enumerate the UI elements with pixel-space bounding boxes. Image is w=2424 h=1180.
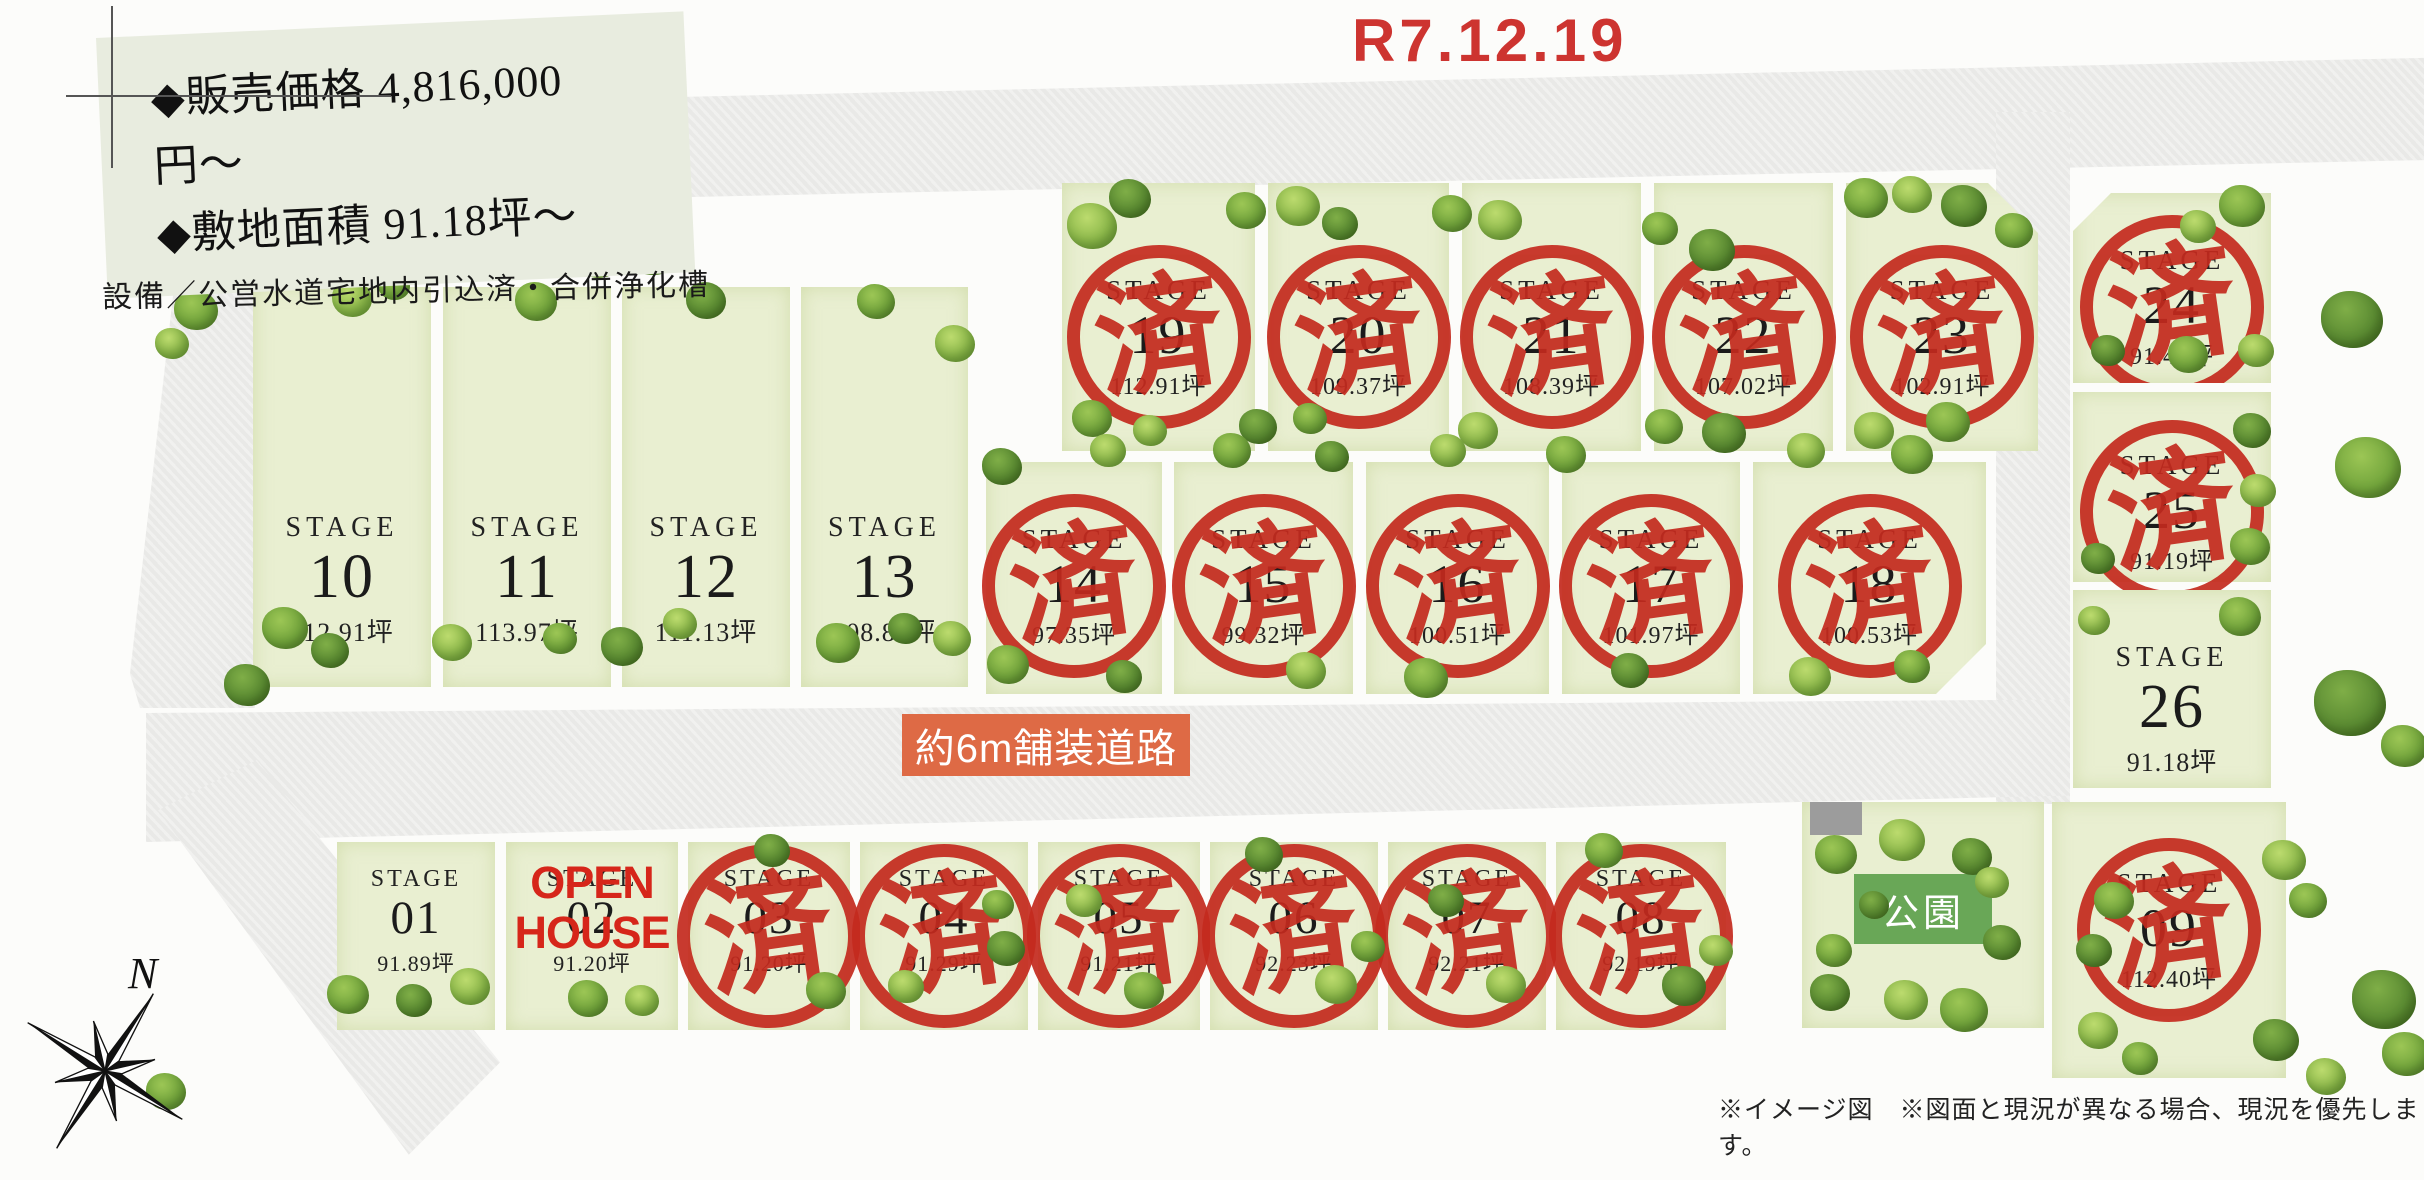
sold-stamp-char: 済	[2097, 858, 2242, 1003]
park-utility-square	[1810, 802, 1862, 835]
tree-icon	[982, 890, 1014, 919]
sold-stamp-icon: 済	[1363, 832, 1571, 1040]
tree-icon	[1642, 212, 1678, 245]
lot-label: STAGE 11 113.97坪	[443, 512, 611, 649]
sold-stamp-char: 済	[1797, 514, 1942, 659]
tree-icon	[1926, 402, 1970, 442]
tree-icon	[2219, 597, 2261, 636]
tree-icon	[888, 613, 922, 644]
sold-stamp-char: 済	[1870, 265, 2015, 410]
sold-stamp-char: 済	[1579, 514, 1724, 659]
tree-icon	[987, 931, 1025, 966]
tree-icon	[1322, 207, 1358, 240]
date-heading: R7.12.19	[1352, 6, 1628, 75]
tree-icon	[1891, 435, 1933, 474]
sold-stamp-icon: 済	[1448, 233, 1656, 441]
sold-stamp-char: 済	[2100, 440, 2245, 585]
tree-icon	[1315, 441, 1349, 472]
lot-area: 111.13坪	[622, 612, 790, 649]
tree-icon	[888, 970, 924, 1003]
lot-stage-15: STAGE 15 99.32坪 済	[1174, 462, 1353, 694]
tree-icon	[224, 664, 270, 706]
price-line: ◆販売価格 4,816,000円〜	[149, 43, 655, 202]
sold-stamp-icon: 済	[2068, 203, 2276, 411]
tree-icon	[2122, 1042, 2158, 1075]
tree-icon	[1404, 658, 1448, 698]
lot-number: 11	[443, 546, 611, 609]
lot-stage-22: STAGE 22 107.02坪 済	[1654, 183, 1833, 451]
tree-icon	[155, 328, 189, 359]
tree-icon	[450, 968, 490, 1005]
lot-stage-11: STAGE 11 113.97坪	[443, 287, 611, 687]
tree-icon	[1478, 200, 1522, 240]
tree-icon	[1702, 413, 1746, 453]
tree-icon	[1859, 891, 1889, 919]
lot-stage-18: STAGE 18 100.53坪 済	[1753, 462, 1986, 694]
lot-stage-07: STAGE 07 92.21坪 済	[1388, 842, 1546, 1030]
sold-stamp-icon: 済	[1766, 482, 1974, 690]
tree-icon	[987, 645, 1029, 684]
tree-icon	[2314, 670, 2386, 736]
tree-icon	[1884, 980, 1928, 1020]
sold-stamp-icon: 済	[1160, 482, 1368, 690]
tree-icon	[625, 985, 659, 1016]
open-house-label: OPENHOUSE	[514, 858, 669, 959]
disclaimer-note: ※イメージ図 ※図面と現況が異なる場合、現況を優先します。	[1718, 1090, 2424, 1162]
lot-label: STAGE 26 91.18坪	[2073, 642, 2271, 779]
lot-label: STAGE 01 91.89坪	[337, 866, 495, 978]
tree-icon	[1106, 660, 1142, 693]
tree-icon	[2382, 1032, 2424, 1076]
tree-icon	[2180, 210, 2216, 243]
lot-area: 91.18坪	[2073, 742, 2271, 779]
lot-label: STAGE 12 111.13坪	[622, 512, 790, 649]
tree-icon	[1293, 403, 1327, 434]
tree-icon	[1699, 935, 1733, 966]
site-plan-flyer: ◆販売価格 4,816,000円〜 ◆敷地面積 91.18坪〜 設備／公営水道宅…	[0, 0, 2424, 1174]
sold-stamp-icon: 済	[2065, 826, 2273, 1034]
tree-icon	[2321, 291, 2383, 348]
tree-icon	[1226, 192, 1266, 229]
tree-icon	[1815, 835, 1857, 874]
tree-icon	[1879, 819, 1925, 861]
tree-icon	[1789, 657, 1831, 696]
tree-icon	[982, 448, 1022, 485]
tree-icon	[1645, 409, 1683, 444]
sold-stamp-icon: 済	[1015, 832, 1223, 1040]
sold-stamp-char: 済	[1002, 514, 1147, 659]
crop-mark-horizontal	[66, 95, 391, 97]
tree-icon	[1432, 195, 1472, 232]
lot-number: 13	[801, 546, 968, 609]
tree-icon	[2335, 437, 2401, 498]
lot-number: 26	[2073, 676, 2271, 739]
sold-stamp-char: 済	[1385, 514, 1530, 659]
tree-icon	[2240, 474, 2276, 507]
sold-stamp-char: 済	[1671, 265, 1816, 410]
tree-icon	[1983, 925, 2021, 960]
lot-stage-word: STAGE	[253, 512, 431, 544]
tree-icon	[2230, 528, 2270, 565]
tree-icon	[1486, 966, 1526, 1003]
tree-icon	[2289, 883, 2327, 918]
sold-stamp-icon: 済	[1255, 233, 1463, 441]
sold-stamp-char: 済	[1191, 514, 1336, 659]
tree-icon	[2078, 1012, 2118, 1049]
tree-icon	[1662, 966, 1706, 1006]
lot-number: 12	[622, 546, 790, 609]
tree-icon	[1854, 412, 1894, 449]
tree-icon	[543, 623, 577, 654]
tree-icon	[806, 972, 846, 1009]
tree-icon	[935, 325, 975, 362]
lot-stage-05: STAGE 05 91.21坪 済	[1038, 842, 1200, 1030]
tree-icon	[816, 623, 860, 663]
tree-icon	[1066, 884, 1102, 917]
tree-icon	[1611, 653, 1649, 688]
tree-icon	[1124, 972, 1164, 1009]
tree-icon	[2078, 606, 2110, 635]
tree-icon	[1351, 931, 1385, 962]
tree-icon	[1940, 988, 1988, 1032]
lot-number: 01	[337, 895, 495, 943]
tree-icon	[1133, 415, 1167, 446]
tree-icon	[2253, 1019, 2299, 1061]
tree-icon	[568, 980, 608, 1017]
tree-icon	[1315, 965, 1357, 1004]
tree-icon	[2219, 185, 2265, 227]
tree-icon	[2168, 336, 2208, 373]
tree-icon	[262, 607, 308, 649]
tree-icon	[311, 633, 349, 668]
lot-stage-word: STAGE	[801, 512, 968, 544]
tree-icon	[2094, 882, 2134, 919]
tree-icon	[1816, 934, 1852, 967]
sold-stamp-icon: 済	[1547, 482, 1755, 690]
tree-icon	[396, 984, 432, 1017]
tree-icon	[1941, 185, 1987, 227]
tree-icon	[754, 834, 790, 867]
compass-north-label: N	[128, 948, 157, 999]
tree-icon	[2262, 840, 2306, 880]
crop-mark-vertical	[111, 6, 113, 168]
tree-icon	[857, 284, 895, 319]
tree-icon	[1067, 203, 1117, 249]
tree-icon	[1213, 433, 1251, 468]
tree-icon	[1428, 884, 1464, 917]
road-width-label: 約6m舗装道路	[902, 714, 1190, 776]
tree-icon	[1245, 837, 1283, 872]
sold-stamp-icon: 済	[1354, 482, 1562, 690]
tree-icon	[1689, 229, 1735, 271]
tree-icon	[2233, 413, 2271, 448]
road-top	[610, 55, 2424, 197]
sold-stamp-char: 済	[1047, 864, 1192, 1009]
compass-rose: N	[10, 930, 240, 1170]
tree-icon	[663, 608, 697, 639]
price-info-box: ◆販売価格 4,816,000円〜 ◆敷地面積 91.18坪〜	[96, 11, 695, 298]
tree-icon	[1585, 833, 1623, 868]
sold-stamp-char: 済	[1286, 265, 1431, 410]
tree-icon	[1787, 433, 1825, 468]
tree-icon	[1810, 974, 1850, 1011]
tree-icon	[1975, 867, 2009, 898]
tree-icon	[432, 624, 472, 661]
tree-icon	[1995, 213, 2033, 248]
tree-icon	[1109, 179, 1151, 218]
tree-icon	[2352, 970, 2416, 1029]
tree-icon	[1090, 434, 1126, 467]
tree-icon	[1286, 652, 1326, 689]
tree-icon	[601, 627, 643, 666]
tree-icon	[1276, 186, 1320, 226]
tree-icon	[933, 621, 971, 656]
lot-stage-word: STAGE	[337, 866, 495, 893]
tree-icon	[327, 975, 369, 1014]
road-left	[130, 278, 255, 708]
compass-star-icon	[10, 976, 200, 1166]
tree-icon	[1892, 176, 1932, 213]
sold-stamp-char: 済	[1479, 265, 1624, 410]
tree-icon	[2091, 335, 2125, 366]
tree-icon	[2081, 543, 2115, 574]
lot-stage-word: STAGE	[443, 512, 611, 544]
lot-number: 10	[253, 546, 431, 609]
tree-icon	[2076, 934, 2112, 967]
sold-stamp-char: 済	[1086, 265, 1231, 410]
lot-stage-17: STAGE 17 101.97坪 済	[1562, 462, 1740, 694]
tree-icon	[1430, 434, 1466, 467]
tree-icon	[1546, 436, 1586, 473]
tree-icon	[2238, 334, 2274, 367]
tree-icon	[1072, 400, 1112, 437]
tree-icon	[2381, 725, 2424, 767]
tree-icon	[1894, 650, 1930, 683]
lot-stage-08: STAGE 08 92.19坪 済	[1556, 842, 1726, 1030]
lot-stage-word: STAGE	[2073, 642, 2271, 674]
lot-stage-16: STAGE 16 100.51坪 済	[1366, 462, 1549, 694]
tree-icon	[1844, 178, 1888, 218]
lot-stage-word: STAGE	[622, 512, 790, 544]
lot-stage-12: STAGE 12 111.13坪	[622, 287, 790, 687]
